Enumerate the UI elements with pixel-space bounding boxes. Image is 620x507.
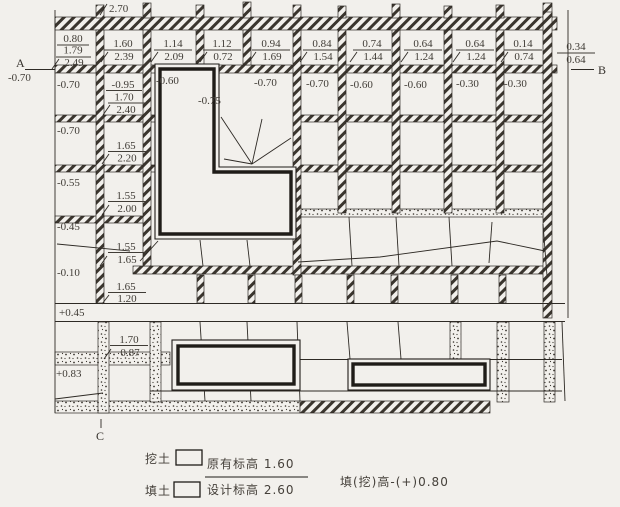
node-fraction: 1.55 xyxy=(116,241,136,253)
legend-cut-swatch xyxy=(176,450,202,465)
cell-value: +0.45 xyxy=(59,307,85,319)
cell-value: -0.95 xyxy=(112,79,135,91)
node-fraction: 0.80 xyxy=(63,33,83,45)
cell-value: -0.60 xyxy=(350,79,373,91)
node-fraction: 0.34 xyxy=(566,41,586,53)
node-fraction: 1.65 xyxy=(116,140,136,152)
node-fraction: 0.14 xyxy=(513,38,533,50)
cell-value: -0.75 xyxy=(198,95,221,107)
earthwork-grid-plan: 2.70 0.80 1.79 2.49 1.60 2.39 1.14 2.09 … xyxy=(0,0,620,507)
top-elevation-value: 2.70 xyxy=(109,3,129,15)
node-fraction: 0.74 xyxy=(514,51,534,63)
node-fraction: 2.00 xyxy=(117,203,137,215)
cell-value: -0.30 xyxy=(504,78,527,90)
node-fraction: 0.87 xyxy=(120,347,140,359)
node-fraction: 1.69 xyxy=(262,51,282,63)
node-fraction: 2.40 xyxy=(116,104,136,116)
legend-cut-label: 挖土 xyxy=(145,451,171,466)
node-fraction: 1.65 xyxy=(117,254,137,266)
section-a-value: -0.70 xyxy=(8,72,31,84)
legend-original-elevation: 原有标高 1.60 xyxy=(207,456,295,471)
cell-value: -0.70 xyxy=(254,77,277,89)
cell-value: -0.30 xyxy=(456,78,479,90)
node-fraction: 1.20 xyxy=(117,293,137,305)
cell-value: -0.70 xyxy=(57,79,80,91)
cell-value: -0.45 xyxy=(57,221,80,233)
cell-value: -0.60 xyxy=(404,79,427,91)
cell-value: -0.60 xyxy=(156,75,179,87)
node-fraction: 2.49 xyxy=(64,57,84,69)
node-fraction: 2.39 xyxy=(114,51,134,63)
node-fraction: 0.64 xyxy=(413,38,433,50)
legend-fill-label: 填土 xyxy=(145,484,171,498)
section-c-label: C xyxy=(96,429,104,443)
cell-value: +0.83 xyxy=(56,368,82,380)
node-fraction: 2.20 xyxy=(117,153,137,165)
site-grid-drawing: 2.70 0.80 1.79 2.49 1.60 2.39 1.14 2.09 … xyxy=(0,0,620,507)
node-fraction: 1.24 xyxy=(466,51,486,63)
node-fraction: 0.84 xyxy=(312,38,332,50)
node-fraction: 1.54 xyxy=(313,51,333,63)
node-fraction: 1.55 xyxy=(116,190,136,202)
node-fraction: 1.70 xyxy=(119,334,139,346)
paper-background xyxy=(0,0,620,507)
legend-design-elevation: 设计标高 2.60 xyxy=(207,482,295,497)
section-b-label: B xyxy=(598,63,606,77)
node-fraction: 0.72 xyxy=(213,51,232,63)
node-fraction: 1.14 xyxy=(163,38,183,50)
node-fraction: 0.74 xyxy=(362,38,382,50)
bottom-left-building xyxy=(172,340,300,390)
node-fraction: 1.24 xyxy=(414,51,434,63)
node-fraction: 1.12 xyxy=(212,38,231,50)
cell-value: -0.70 xyxy=(57,125,80,137)
legend-fill-swatch xyxy=(174,482,200,497)
bottom-right-building xyxy=(348,359,490,390)
node-fraction: 2.09 xyxy=(164,51,184,63)
node-fraction: 1.44 xyxy=(363,51,383,63)
node-fraction: 1.60 xyxy=(113,38,133,50)
cell-value: -0.55 xyxy=(57,177,80,189)
cell-value: -0.10 xyxy=(57,267,80,279)
node-fraction: 1.79 xyxy=(63,45,83,57)
legend-formula: 填(挖)高-(+)0.80 xyxy=(340,474,449,489)
section-a-label: A xyxy=(16,56,25,70)
node-fraction: 0.64 xyxy=(566,54,586,66)
node-fraction: 1.65 xyxy=(116,281,136,293)
cell-value: -0.70 xyxy=(306,78,329,90)
node-fraction: 0.64 xyxy=(465,38,485,50)
node-fraction: 1.70 xyxy=(114,92,134,104)
node-fraction: 0.94 xyxy=(261,38,281,50)
